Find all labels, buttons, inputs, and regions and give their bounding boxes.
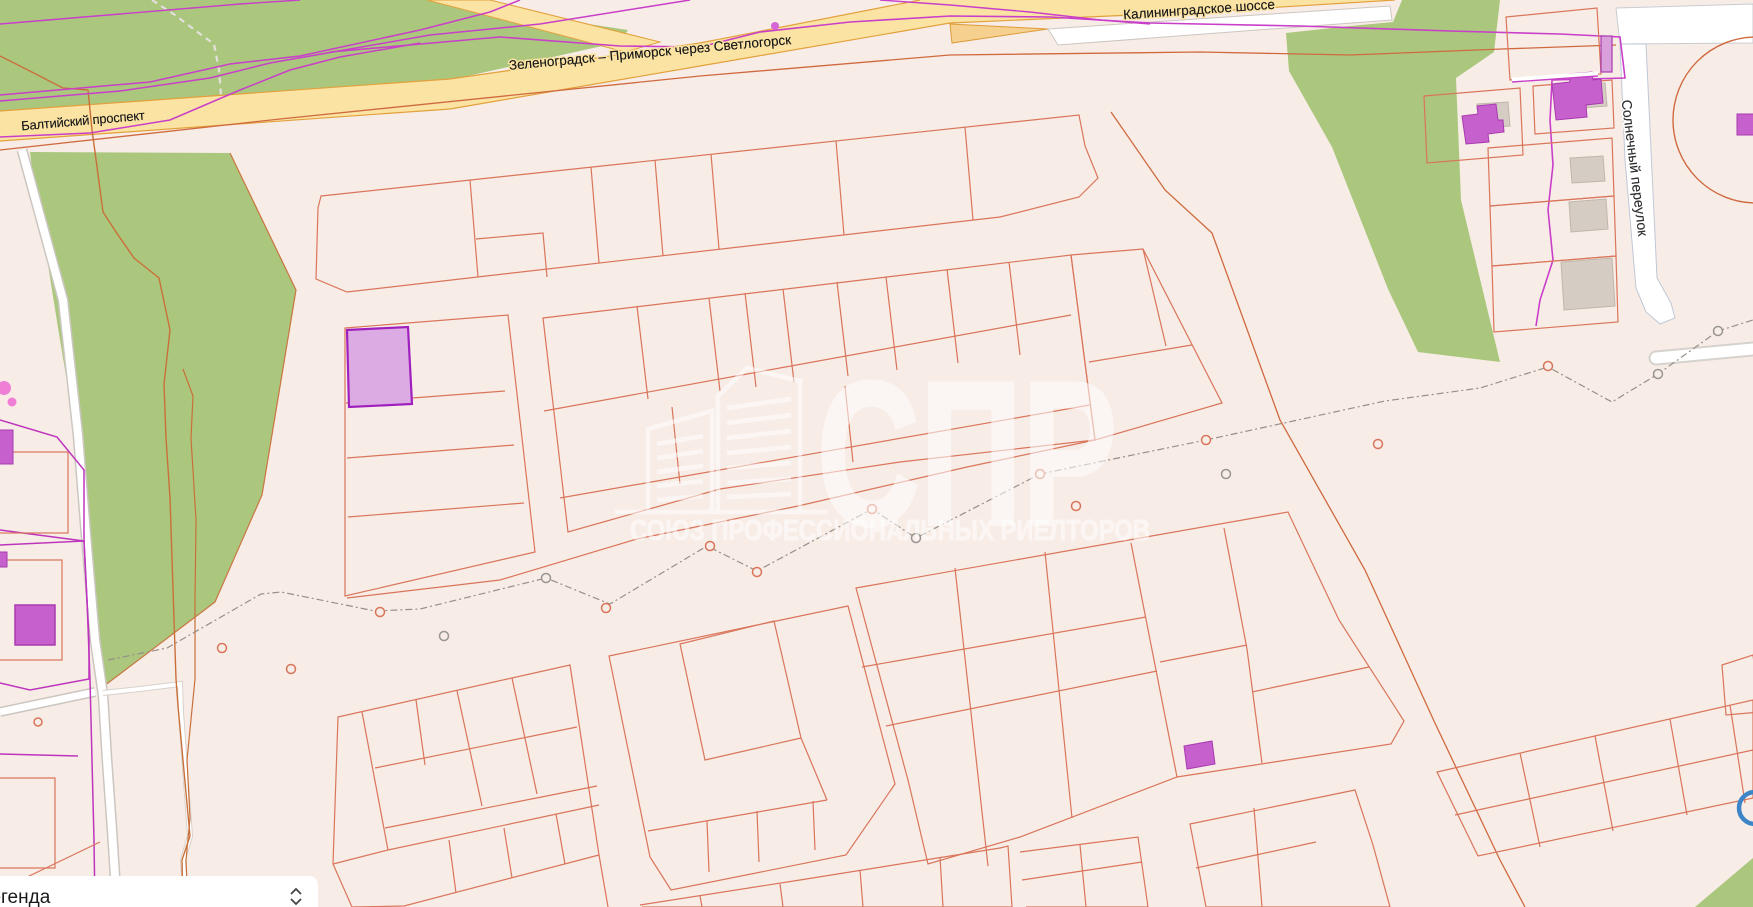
svg-text:СОЮЗ ПРОФЕССИОНАЛЬНЫХ РИЕЛТОРО: СОЮЗ ПРОФЕССИОНАЛЬНЫХ РИЕЛТОРОВ — [630, 515, 1150, 547]
svg-text:Легенда: Легенда — [0, 887, 51, 907]
